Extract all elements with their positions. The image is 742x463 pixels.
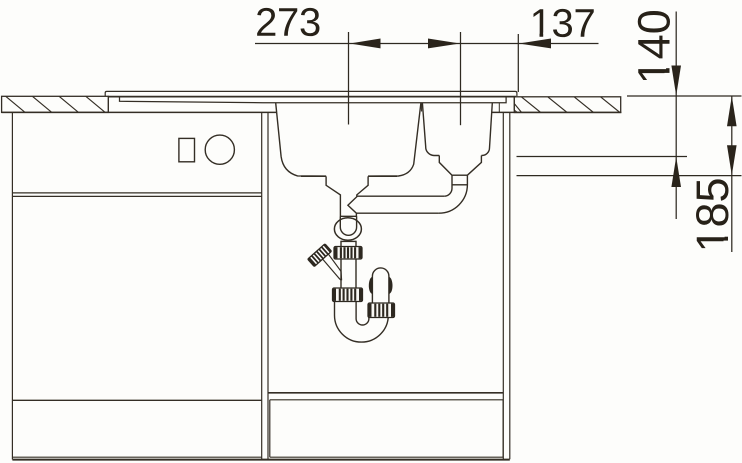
svg-text:137: 137	[530, 2, 596, 46]
svg-text:140: 140	[628, 9, 679, 84]
svg-text:185: 185	[687, 177, 738, 252]
svg-text:273: 273	[255, 1, 321, 45]
